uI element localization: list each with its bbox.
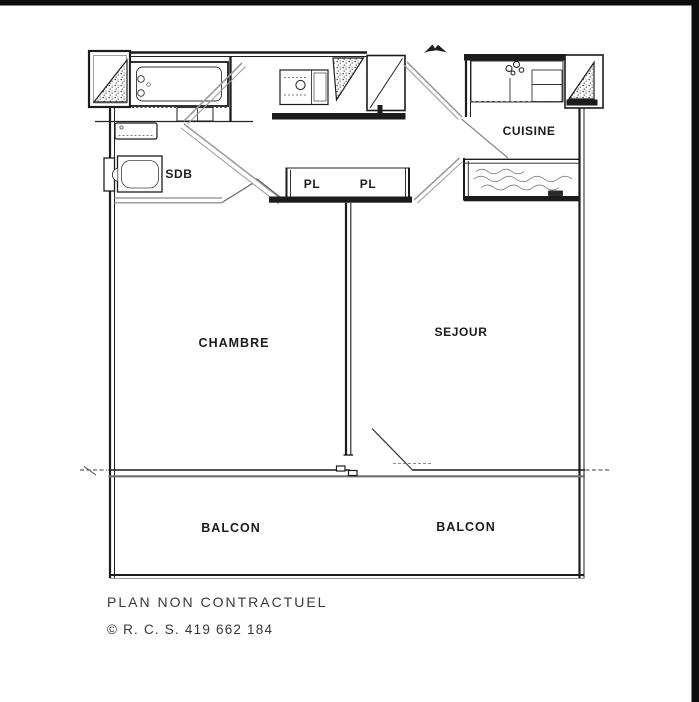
bathroom-shelf (115, 123, 157, 139)
washbasin-icon (104, 156, 162, 192)
bathtub-icon (130, 62, 228, 108)
room-label-chambre: CHAMBRE (199, 336, 270, 350)
right-frame-bar (692, 0, 699, 702)
wc-bottom-wall (272, 113, 406, 120)
entry-door (367, 56, 405, 111)
room-label-sejour: SEJOUR (435, 325, 488, 339)
room-label-balcon-left: BALCON (201, 521, 260, 535)
room-label-pl-left: PL (304, 177, 321, 191)
plan-disclaimer: PLAN NON CONTRACTUEL (107, 594, 327, 610)
top-frame-bar (0, 0, 699, 6)
floor-plan-drawing: SDB CUISINE PL PL CHAMBRE SEJOUR BALCON … (0, 0, 699, 702)
plan-registration: © R. C. S. 419 662 184 (107, 622, 273, 637)
room-label-balcon-right: BALCON (436, 520, 495, 534)
wall-stub (378, 105, 383, 113)
right-wall-hatch (565, 55, 603, 108)
room-label-sdb: SDB (165, 167, 192, 181)
toilet-icon (280, 70, 328, 105)
left-wall-hatch (89, 51, 130, 107)
room-label-pl-right: PL (360, 177, 377, 191)
room-label-cuisine: CUISINE (503, 124, 556, 138)
floor-plan-page: SDB CUISINE PL PL CHAMBRE SEJOUR BALCON … (0, 0, 699, 702)
